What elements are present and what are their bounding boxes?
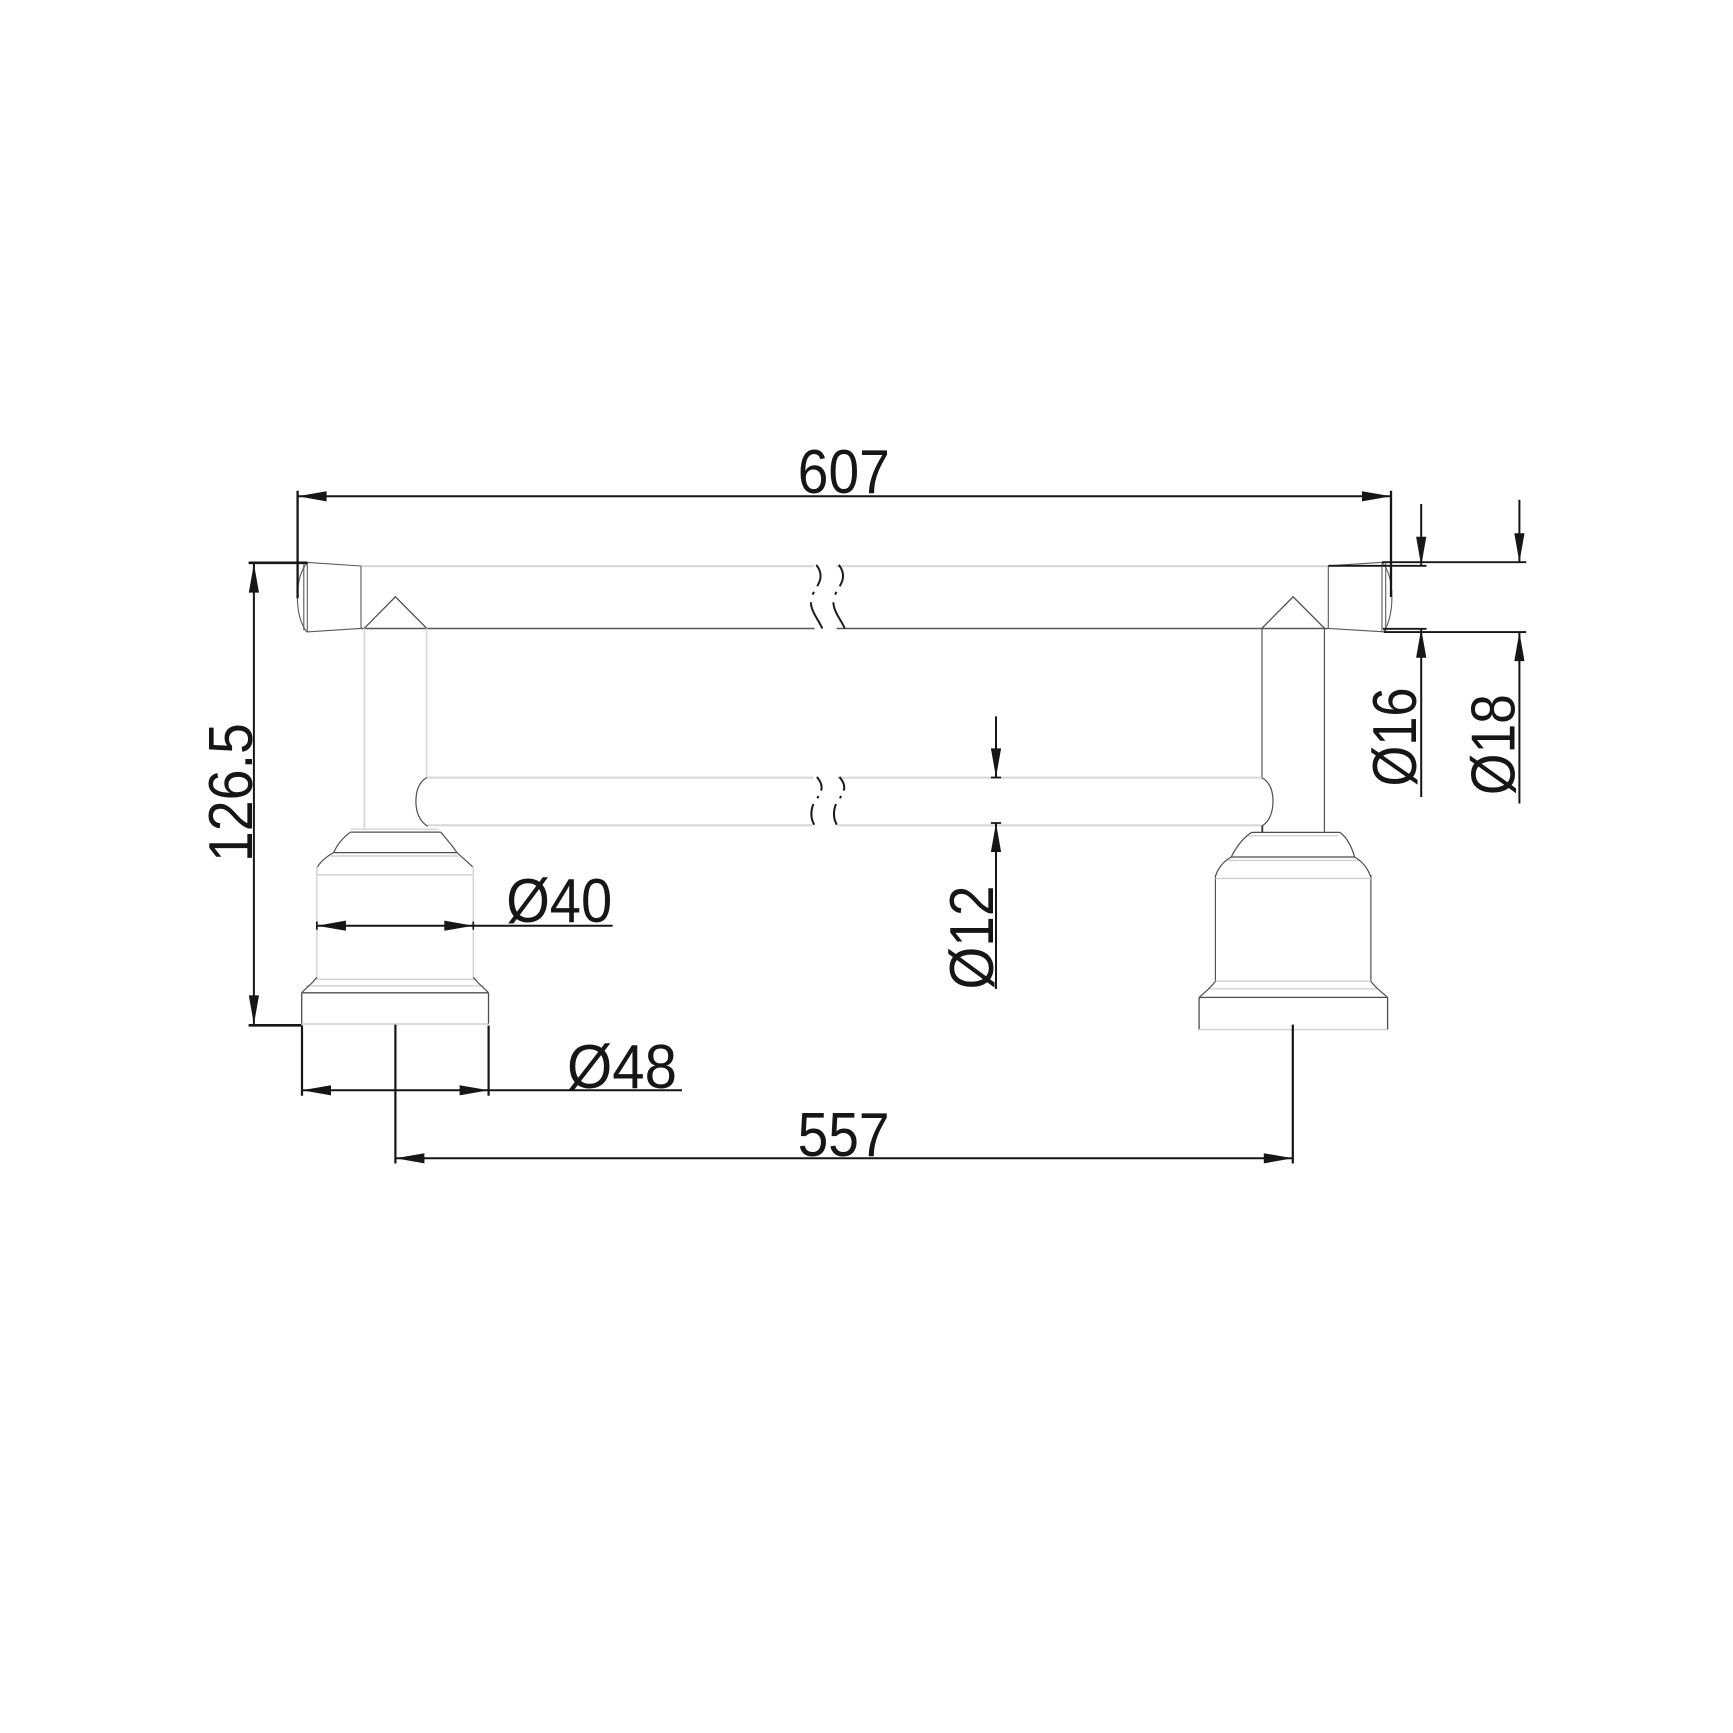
svg-text:557: 557: [798, 1101, 890, 1170]
svg-text:607: 607: [798, 438, 890, 507]
svg-text:Ø18: Ø18: [1460, 694, 1529, 795]
svg-text:Ø40: Ø40: [506, 867, 612, 936]
svg-text:Ø12: Ø12: [938, 886, 1007, 990]
svg-text:Ø48: Ø48: [567, 1033, 677, 1102]
svg-text:Ø16: Ø16: [1361, 688, 1430, 787]
svg-text:126.5: 126.5: [197, 723, 266, 862]
